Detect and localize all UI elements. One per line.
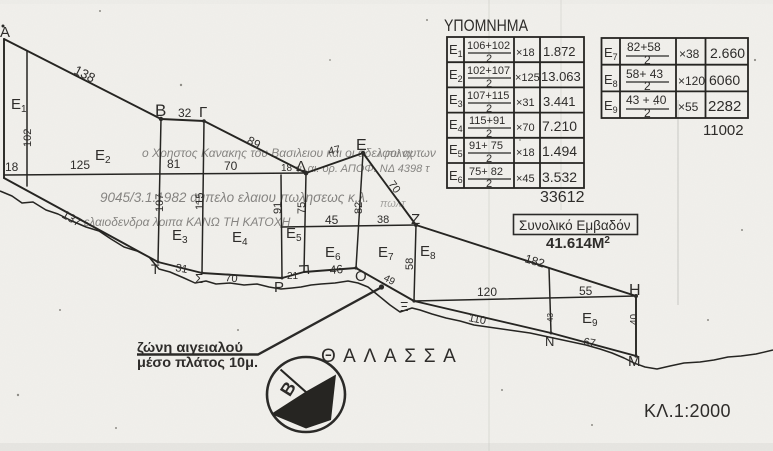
svg-text:ΥΠΟΜΝΗΜΑ: ΥΠΟΜΝΗΜΑ	[444, 17, 528, 35]
svg-text:2: 2	[486, 78, 492, 90]
svg-text:18: 18	[5, 160, 19, 174]
svg-text:125: 125	[70, 158, 90, 172]
svg-text:2282: 2282	[708, 98, 741, 115]
svg-text:43 + 40: 43 + 40	[626, 93, 667, 107]
svg-text:ελαιοδενδρα λοιπα ΚΑΝΩ ΤΗ ΚΑΤΟ: ελαιοδενδρα λοιπα ΚΑΝΩ ΤΗ ΚΑΤΟΧΗ	[84, 215, 291, 229]
svg-text:6060: 6060	[709, 72, 740, 88]
svg-text:πωλτ: πωλτ	[380, 198, 406, 210]
svg-text:91+ 75: 91+ 75	[469, 140, 503, 152]
svg-text:70: 70	[225, 272, 238, 285]
svg-text:2: 2	[644, 106, 651, 120]
svg-text:102: 102	[22, 129, 34, 147]
svg-text:2: 2	[486, 153, 492, 165]
svg-text:Γ: Γ	[199, 104, 207, 121]
svg-text:Μ: Μ	[628, 353, 641, 370]
svg-text:ζώνη αιγειαλού: ζώνη αιγειαλού	[137, 339, 243, 355]
svg-text:45: 45	[325, 213, 339, 227]
svg-text:Σ: Σ	[195, 271, 203, 286]
svg-text:μέσο πλάτος 10μ.: μέσο πλάτος 10μ.	[137, 354, 258, 370]
svg-text:82: 82	[353, 202, 365, 214]
svg-text:41.614Μ2: 41.614Μ2	[546, 235, 610, 252]
svg-text:ΘΑΛΑΣΣΑ: ΘΑΛΑΣΣΑ	[321, 346, 464, 367]
svg-text:7.210: 7.210	[542, 118, 577, 134]
svg-text:Η: Η	[629, 282, 641, 299]
svg-text:Ρ: Ρ	[274, 279, 284, 296]
svg-text:2: 2	[486, 103, 492, 115]
svg-text:55: 55	[579, 284, 593, 298]
svg-text:9045/3.1.1982 αμπελο ελαιου πω: 9045/3.1.1982 αμπελο ελαιου πωλησεως κ.λ…	[100, 190, 369, 205]
svg-text:11002: 11002	[703, 122, 744, 139]
svg-text:47: 47	[327, 144, 341, 158]
svg-text:Ξ: Ξ	[400, 299, 408, 314]
svg-text:×125: ×125	[515, 72, 540, 84]
svg-text:2: 2	[644, 53, 651, 67]
svg-text:Ζ: Ζ	[411, 211, 420, 228]
svg-text:×45: ×45	[516, 173, 535, 185]
svg-text:75: 75	[296, 202, 308, 214]
svg-text:102+107: 102+107	[467, 65, 510, 77]
svg-text:2.660: 2.660	[710, 45, 745, 61]
svg-text:1.872: 1.872	[543, 44, 576, 59]
svg-text:×120: ×120	[678, 74, 705, 88]
svg-text:×70: ×70	[516, 122, 535, 134]
svg-text:91: 91	[272, 202, 284, 214]
svg-text:21: 21	[287, 271, 299, 282]
svg-text:106+102: 106+102	[467, 40, 510, 52]
svg-text:3.441: 3.441	[543, 94, 576, 109]
svg-text:67: 67	[583, 336, 597, 350]
svg-text:Συνολικό Εμβαδόν: Συνολικό Εμβαδόν	[519, 218, 631, 233]
svg-text:33612: 33612	[540, 189, 585, 206]
svg-text:40: 40	[629, 313, 640, 325]
svg-text:2: 2	[486, 53, 492, 65]
svg-text:Β: Β	[155, 101, 166, 120]
svg-text:31: 31	[174, 262, 188, 276]
svg-text:3.532: 3.532	[542, 169, 577, 185]
svg-text:Δ: Δ	[296, 158, 306, 175]
svg-text:82+58: 82+58	[627, 40, 661, 54]
svg-text:107+115: 107+115	[467, 90, 509, 102]
svg-text:Τ: Τ	[151, 261, 160, 277]
svg-text:×18: ×18	[516, 147, 535, 159]
svg-text:Ο: Ο	[355, 268, 367, 285]
svg-text:Α: Α	[0, 24, 10, 41]
svg-text:38: 38	[377, 214, 389, 226]
svg-text:18: 18	[281, 163, 293, 174]
svg-text:75+ 82: 75+ 82	[469, 166, 503, 178]
svg-text:46: 46	[329, 262, 344, 277]
svg-text:ι. πιλνχ: ι. πιλνχ	[378, 148, 414, 160]
svg-text:×38: ×38	[679, 47, 700, 61]
svg-text:ΚΛ.1:2000: ΚΛ.1:2000	[644, 401, 731, 421]
svg-text:2: 2	[644, 79, 651, 93]
svg-text:58: 58	[404, 258, 416, 270]
svg-text:×31: ×31	[516, 97, 535, 109]
svg-text:120: 120	[477, 285, 497, 299]
svg-text:2: 2	[486, 128, 492, 140]
svg-text:Ν: Ν	[545, 334, 554, 349]
svg-text:115+91: 115+91	[469, 115, 505, 127]
svg-text:32: 32	[178, 106, 192, 120]
svg-text:2: 2	[486, 178, 492, 190]
svg-text:×18: ×18	[516, 47, 535, 59]
svg-text:Ε: Ε	[356, 137, 367, 154]
svg-text:×55: ×55	[678, 100, 699, 114]
svg-text:13.063: 13.063	[541, 69, 581, 84]
svg-text:43: 43	[546, 313, 555, 322]
svg-text:1.494: 1.494	[542, 143, 577, 159]
svg-text:115: 115	[194, 192, 206, 210]
svg-text:81: 81	[167, 157, 181, 171]
svg-text:107: 107	[154, 194, 166, 212]
svg-text:70: 70	[224, 159, 238, 173]
